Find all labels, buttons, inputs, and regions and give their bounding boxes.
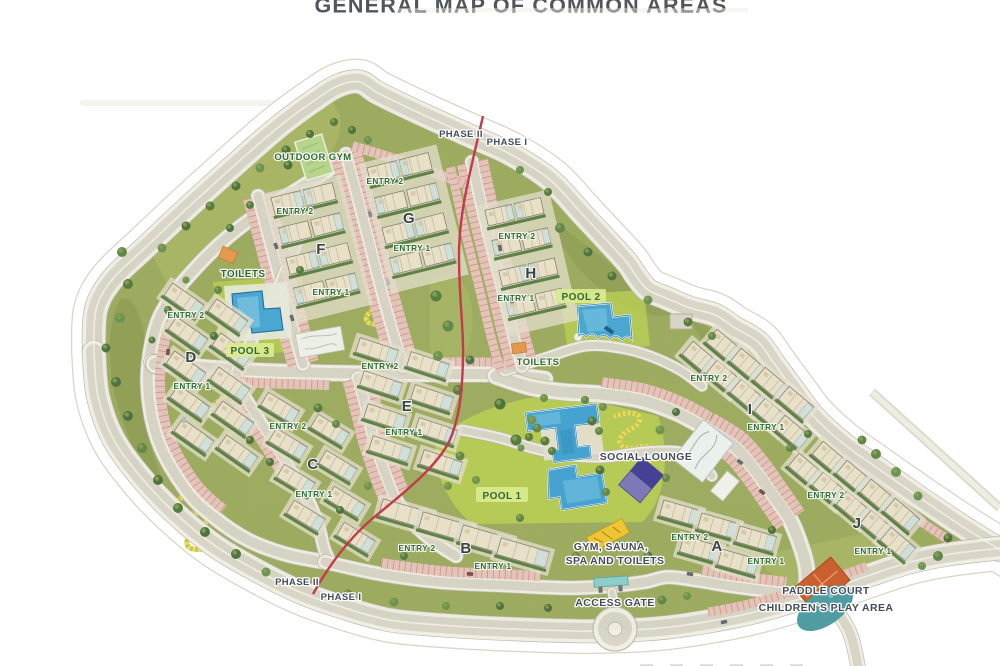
svg-text:F: F (316, 241, 326, 258)
svg-text:ENTRY 1: ENTRY 1 (855, 547, 892, 556)
svg-text:ENTRY 1: ENTRY 1 (296, 490, 333, 499)
svg-text:J: J (853, 515, 862, 532)
svg-text:ACCESS GATE: ACCESS GATE (575, 597, 654, 609)
svg-text:PHASE I: PHASE I (487, 137, 528, 148)
svg-text:PHASE II: PHASE II (275, 577, 319, 588)
svg-text:ENTRY 1: ENTRY 1 (498, 294, 535, 303)
svg-text:TOILETS: TOILETS (517, 357, 560, 368)
svg-text:ENTRY 1: ENTRY 1 (748, 557, 785, 566)
svg-text:ENTRY 2: ENTRY 2 (399, 544, 436, 553)
svg-text:H: H (525, 265, 536, 282)
svg-text:CHILDREN`S PLAY AREA: CHILDREN`S PLAY AREA (759, 602, 894, 614)
svg-text:C: C (307, 456, 318, 473)
svg-text:POOL 3: POOL 3 (231, 346, 270, 357)
svg-text:ENTRY 2: ENTRY 2 (277, 207, 314, 216)
svg-text:ENTRY 1: ENTRY 1 (475, 562, 512, 571)
svg-text:ENTRY 2: ENTRY 2 (270, 422, 307, 431)
svg-text:ENTRY 2: ENTRY 2 (168, 311, 205, 320)
svg-text:TOILETS: TOILETS (221, 269, 266, 280)
svg-text:ENTRY 1: ENTRY 1 (394, 244, 431, 253)
svg-text:I: I (748, 401, 753, 418)
svg-text:GYM, SAUNA,: GYM, SAUNA, (574, 541, 648, 553)
svg-text:SOCIAL LOUNGE: SOCIAL LOUNGE (600, 451, 693, 463)
svg-text:D: D (185, 349, 196, 366)
svg-text:SPA AND TOILETS: SPA AND TOILETS (566, 555, 665, 567)
svg-text:ENTRY 2: ENTRY 2 (362, 362, 399, 371)
svg-text:B: B (460, 540, 471, 557)
svg-text:ENTRY 1: ENTRY 1 (174, 382, 211, 391)
svg-text:POOL 1: POOL 1 (483, 491, 522, 502)
svg-text:ENTRY 2: ENTRY 2 (499, 232, 536, 241)
svg-text:POOL 2: POOL 2 (562, 292, 601, 303)
svg-text:PHASE II: PHASE II (439, 129, 483, 140)
svg-text:OUTDOOR GYM: OUTDOOR GYM (274, 152, 351, 163)
svg-text:G: G (403, 210, 415, 227)
svg-text:E: E (402, 398, 412, 415)
svg-text:ENTRY 2: ENTRY 2 (672, 533, 709, 542)
svg-text:A: A (711, 538, 722, 555)
svg-text:PHASE I: PHASE I (321, 592, 362, 603)
svg-text:PADDLE COURT: PADDLE COURT (782, 585, 870, 597)
svg-text:ENTRY 2: ENTRY 2 (367, 177, 404, 186)
svg-text:ENTRY 2: ENTRY 2 (808, 491, 845, 500)
svg-text:ENTRY 1: ENTRY 1 (748, 423, 785, 432)
svg-text:ENTRY 1: ENTRY 1 (313, 288, 350, 297)
svg-text:ENTRY 2: ENTRY 2 (691, 374, 728, 383)
svg-text:ENTRY 1: ENTRY 1 (386, 428, 423, 437)
